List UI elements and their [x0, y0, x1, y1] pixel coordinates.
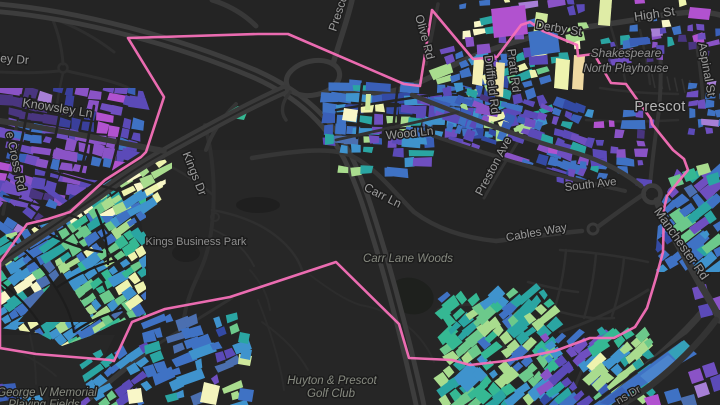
svg-text:George V Memorial: George V Memorial: [0, 387, 97, 399]
svg-text:Playing Fields: Playing Fields: [8, 399, 80, 405]
svg-text:Shakespeare: Shakespeare: [591, 46, 662, 60]
svg-text:ley Dr: ley Dr: [0, 51, 29, 67]
svg-text:Prescot: Prescot: [634, 99, 685, 115]
svg-text:Kings Business Park: Kings Business Park: [146, 236, 247, 248]
svg-text:Carr Lane Woods: Carr Lane Woods: [363, 253, 453, 265]
svg-text:Golf Club: Golf Club: [307, 388, 356, 400]
svg-text:Huyton & Prescot: Huyton & Prescot: [287, 375, 377, 387]
svg-text:North Playhouse: North Playhouse: [583, 63, 668, 75]
